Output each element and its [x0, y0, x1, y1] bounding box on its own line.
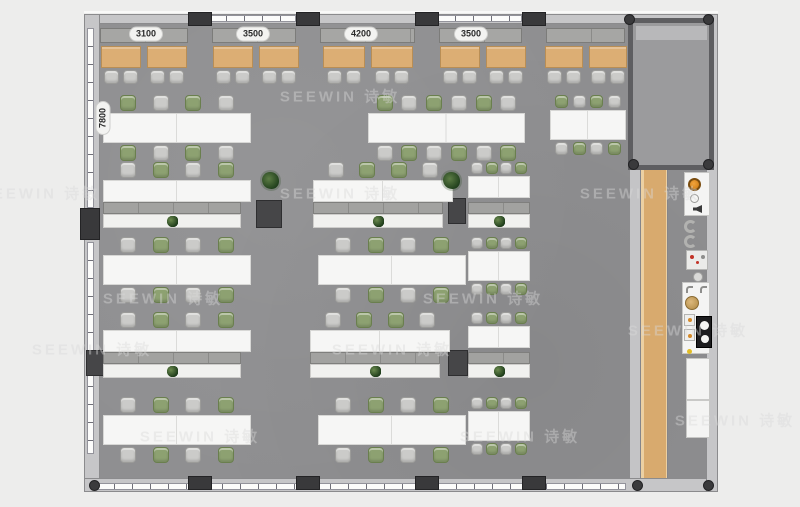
chair	[262, 70, 277, 84]
chair	[375, 70, 390, 84]
chair	[153, 237, 169, 253]
chair	[150, 70, 165, 84]
desk-table	[310, 330, 450, 352]
chair	[462, 70, 477, 84]
chair	[153, 447, 169, 463]
chair	[153, 312, 169, 328]
outer-wall	[84, 14, 718, 24]
plant-icon	[167, 366, 178, 377]
dimension-label-side: 7800	[96, 101, 111, 135]
planter-cabinet	[310, 352, 440, 364]
wall-cabinet	[546, 28, 625, 43]
chair	[471, 443, 483, 455]
chair	[500, 145, 516, 161]
chair	[515, 162, 527, 174]
chair	[443, 70, 458, 84]
chair	[515, 283, 527, 295]
column-dot	[624, 14, 635, 25]
chair	[400, 447, 416, 463]
chair	[153, 397, 169, 413]
chair	[185, 447, 201, 463]
chair	[120, 237, 136, 253]
wood-table	[545, 46, 583, 68]
chair	[356, 312, 372, 328]
chair	[185, 237, 201, 253]
chair	[433, 447, 449, 463]
exterior-line	[84, 11, 718, 13]
chair	[486, 237, 498, 249]
chair	[471, 237, 483, 249]
chair	[400, 397, 416, 413]
chair	[590, 95, 603, 108]
chair	[471, 397, 483, 409]
desk-table	[103, 415, 251, 445]
column-pillar	[188, 12, 212, 26]
coffee-machine-icon	[686, 250, 708, 270]
planter-cabinet	[468, 202, 530, 214]
chair	[327, 70, 342, 84]
column-dot	[703, 159, 714, 170]
corridor-edge-band	[630, 170, 640, 478]
window-strip-left	[87, 28, 94, 208]
planter-cabinet	[468, 352, 530, 364]
chair	[489, 70, 504, 84]
stool-icon	[693, 272, 703, 282]
chair	[169, 70, 184, 84]
chair	[153, 162, 169, 178]
chair	[508, 70, 523, 84]
chair	[400, 237, 416, 253]
wood-table	[101, 46, 141, 68]
column-pillar	[296, 12, 320, 26]
column-pillar	[188, 476, 212, 490]
meeting-room	[628, 18, 714, 170]
chair	[471, 162, 483, 174]
chair	[500, 283, 512, 295]
chair	[120, 287, 136, 303]
chair	[476, 145, 492, 161]
chair	[401, 95, 417, 111]
column-pillar	[80, 208, 100, 240]
chair	[471, 312, 483, 324]
planter	[468, 214, 530, 228]
chair	[153, 287, 169, 303]
chair	[216, 70, 231, 84]
chair	[120, 397, 136, 413]
dimension-label-top-2: 3500	[236, 27, 270, 42]
chair	[281, 70, 296, 84]
wood-table	[371, 46, 413, 68]
column-pillar	[415, 12, 439, 26]
chair	[486, 162, 498, 174]
chair	[185, 95, 201, 111]
chair	[591, 70, 606, 84]
chair	[218, 95, 234, 111]
wood-table	[147, 46, 187, 68]
desk-table	[318, 415, 466, 445]
desk-table	[550, 110, 626, 140]
chair	[515, 397, 527, 409]
desk-table	[313, 180, 453, 202]
chair	[335, 237, 351, 253]
wood-table	[259, 46, 299, 68]
planter	[310, 364, 440, 378]
chair	[394, 70, 409, 84]
column-pillar	[522, 476, 546, 490]
indicator-dot	[696, 261, 699, 264]
chair	[368, 447, 384, 463]
round-plant-icon	[262, 172, 279, 189]
column-dot	[628, 159, 639, 170]
chair	[500, 312, 512, 324]
desk-table	[468, 176, 530, 198]
lounge-chair-icon	[684, 235, 697, 248]
desk-table	[103, 113, 251, 143]
plant-icon	[373, 216, 384, 227]
chair	[325, 312, 341, 328]
chair	[451, 145, 467, 161]
chair	[377, 95, 393, 111]
chair	[218, 287, 234, 303]
chair	[153, 95, 169, 111]
chair	[368, 237, 384, 253]
sink-icon	[685, 296, 699, 310]
chair	[335, 397, 351, 413]
chair	[377, 145, 393, 161]
chair	[359, 162, 375, 178]
column-pillar	[415, 476, 439, 490]
desk-table	[468, 411, 530, 441]
chair	[104, 70, 119, 84]
pantry-cabinet-lower	[686, 358, 710, 438]
chair	[555, 142, 568, 155]
chair	[401, 145, 417, 161]
wood-table	[440, 46, 480, 68]
chair	[153, 145, 169, 161]
chair	[185, 162, 201, 178]
chair	[573, 142, 586, 155]
meeting-room-strip	[636, 26, 707, 40]
dimension-label-top-1: 3100	[129, 27, 163, 42]
chair	[218, 145, 234, 161]
chair	[500, 443, 512, 455]
floor-plan-canvas: 3100 3500 4200 3500 7800 SEEWIN 诗敏SEEWIN…	[0, 0, 800, 507]
wood-table	[486, 46, 526, 68]
chair	[120, 162, 136, 178]
plant-icon	[494, 216, 505, 227]
chair	[608, 95, 621, 108]
chair	[486, 312, 498, 324]
plant-icon	[167, 216, 178, 227]
window-strip	[208, 15, 296, 22]
indicator-dot	[688, 318, 692, 322]
desk-table	[318, 255, 466, 285]
chair	[471, 283, 483, 295]
chair	[476, 95, 492, 111]
wood-table	[589, 46, 627, 68]
chair	[346, 70, 361, 84]
chair	[433, 237, 449, 253]
chair	[515, 443, 527, 455]
planter	[468, 364, 530, 378]
plant-icon	[494, 366, 505, 377]
chair	[218, 312, 234, 328]
planter-cabinet	[103, 202, 241, 214]
chair	[218, 397, 234, 413]
planter	[103, 364, 241, 378]
planter	[313, 214, 443, 228]
chair	[433, 287, 449, 303]
burner-ring	[701, 335, 709, 343]
chair	[218, 447, 234, 463]
chair	[500, 397, 512, 409]
desk-table	[103, 255, 251, 285]
round-plant-icon	[443, 172, 460, 189]
wood-walkway	[640, 170, 668, 478]
chair	[120, 447, 136, 463]
chair	[426, 145, 442, 161]
window-strip	[437, 15, 522, 22]
chair	[335, 447, 351, 463]
chair	[573, 95, 586, 108]
chair	[590, 142, 603, 155]
indicator-dot	[701, 255, 705, 259]
chair	[451, 95, 467, 111]
wood-table	[323, 46, 365, 68]
chair	[500, 162, 512, 174]
chair	[547, 70, 562, 84]
appliance-icon	[684, 329, 695, 341]
chair	[419, 312, 435, 328]
chair	[500, 237, 512, 249]
chair	[123, 70, 138, 84]
window-strip-left	[87, 242, 94, 454]
chair	[185, 287, 201, 303]
chair	[218, 162, 234, 178]
chair	[185, 145, 201, 161]
chair	[515, 237, 527, 249]
chair	[328, 162, 344, 178]
desk-table	[468, 326, 530, 348]
faucet-icon	[686, 286, 693, 293]
indicator-dot	[687, 349, 692, 354]
burner-icon	[688, 178, 701, 191]
chair	[426, 95, 442, 111]
chair	[120, 312, 136, 328]
dial-icon	[690, 194, 699, 203]
indicator-dot	[690, 255, 694, 259]
chair	[486, 283, 498, 295]
chair	[218, 237, 234, 253]
chair	[185, 397, 201, 413]
storage-block	[256, 200, 282, 228]
plant-icon	[370, 366, 381, 377]
column-dot	[632, 480, 643, 491]
chair	[388, 312, 404, 328]
lounge-chair-icon	[684, 220, 697, 233]
burner-ring	[700, 321, 709, 330]
faucet-icon	[700, 286, 707, 293]
chair	[486, 443, 498, 455]
planter	[103, 214, 241, 228]
chair	[368, 397, 384, 413]
chair	[608, 142, 621, 155]
column-pillar	[296, 476, 320, 490]
planter-cabinet	[103, 352, 241, 364]
chair	[610, 70, 625, 84]
chair	[335, 287, 351, 303]
chair	[368, 287, 384, 303]
cooktop-icon	[696, 316, 712, 348]
chair	[391, 162, 407, 178]
appliance-icon	[684, 314, 695, 326]
desk-table	[368, 113, 525, 143]
cabinet-seam	[687, 399, 709, 401]
chair	[400, 287, 416, 303]
chair	[422, 162, 438, 178]
chair	[185, 312, 201, 328]
desk-table	[103, 180, 251, 202]
planter-cabinet	[313, 202, 443, 214]
chair	[486, 397, 498, 409]
column-pillar	[522, 12, 546, 26]
chair	[515, 312, 527, 324]
column-dot	[89, 480, 100, 491]
chair	[433, 397, 449, 413]
chair	[120, 145, 136, 161]
desk-table	[468, 251, 530, 281]
chair	[120, 95, 136, 111]
chair	[235, 70, 250, 84]
column-dot	[703, 480, 714, 491]
chair	[555, 95, 568, 108]
chair	[500, 95, 516, 111]
storage-block	[448, 350, 468, 376]
column-dot	[703, 14, 714, 25]
desk-table	[103, 330, 251, 352]
indicator-dot	[688, 334, 692, 338]
wood-table	[213, 46, 253, 68]
chair	[566, 70, 581, 84]
dimension-label-top-3: 4200	[344, 27, 378, 42]
dimension-label-top-4: 3500	[454, 27, 488, 42]
window-strip	[96, 483, 626, 490]
